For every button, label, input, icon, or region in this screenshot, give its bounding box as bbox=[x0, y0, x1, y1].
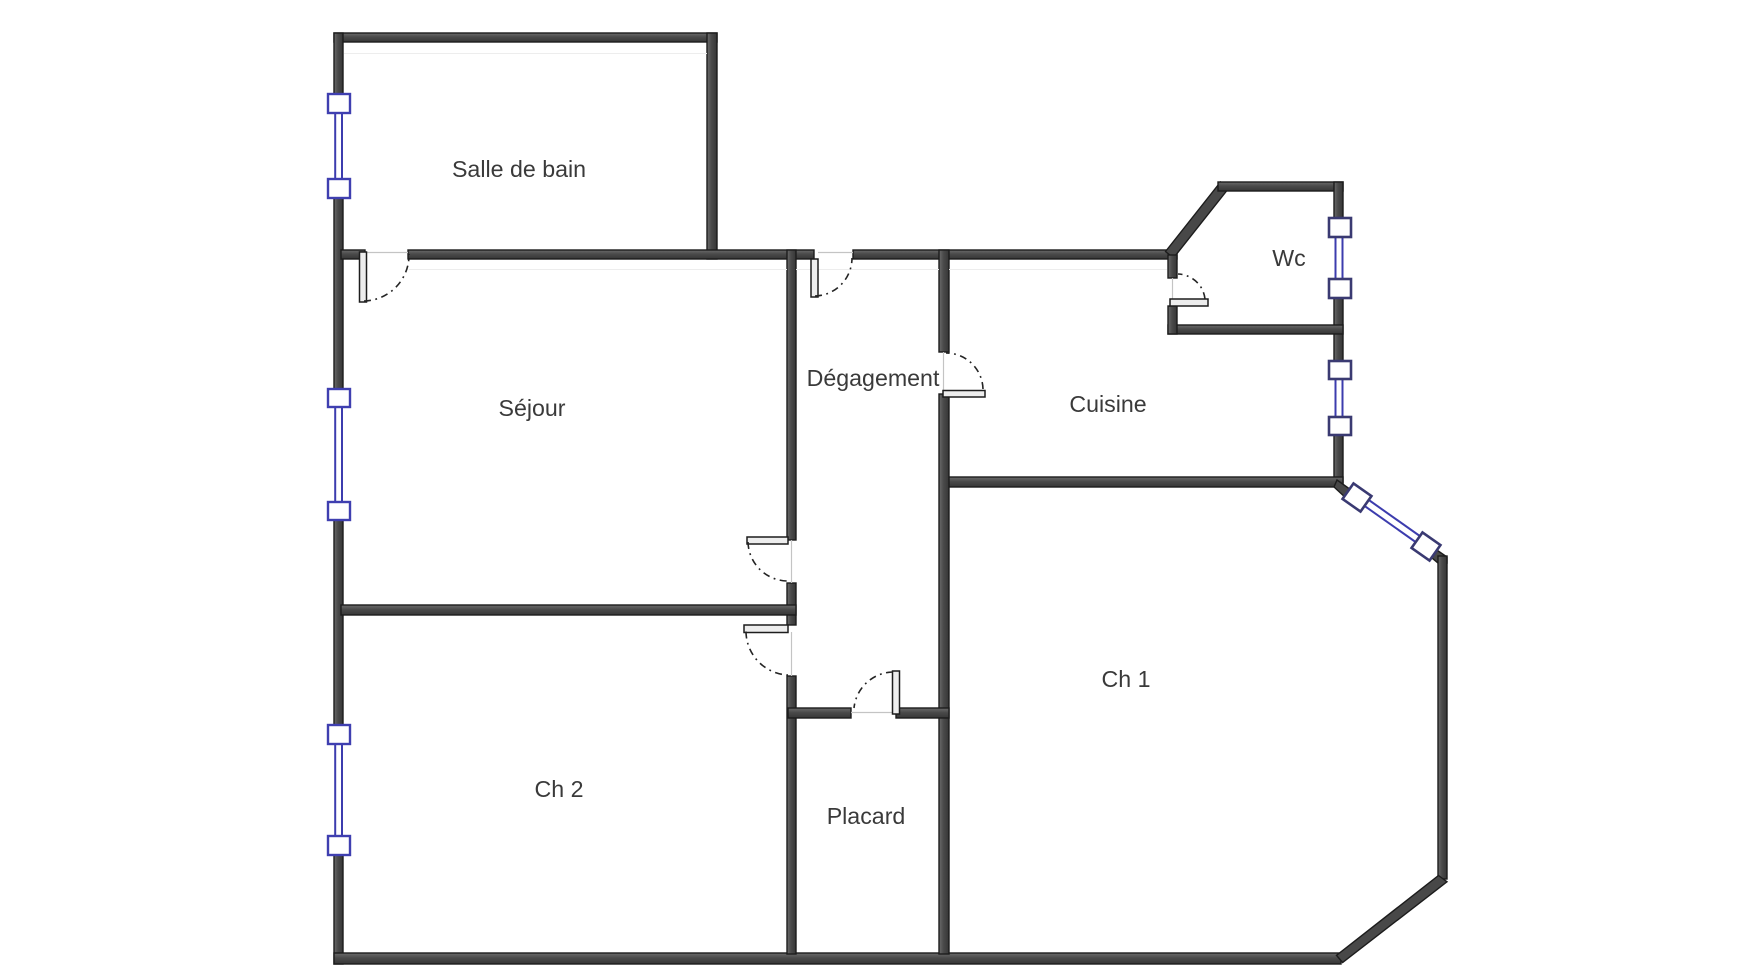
svg-text:Wc: Wc bbox=[1272, 245, 1305, 271]
svg-text:Cuisine: Cuisine bbox=[1069, 391, 1146, 417]
svg-text:Ch 2: Ch 2 bbox=[535, 776, 584, 802]
svg-text:Salle de bain: Salle de bain bbox=[452, 156, 586, 182]
svg-text:Placard: Placard bbox=[827, 803, 906, 829]
svg-text:Ch 1: Ch 1 bbox=[1102, 666, 1151, 692]
svg-text:Dégagement: Dégagement bbox=[807, 365, 940, 391]
svg-text:Séjour: Séjour bbox=[498, 395, 565, 421]
